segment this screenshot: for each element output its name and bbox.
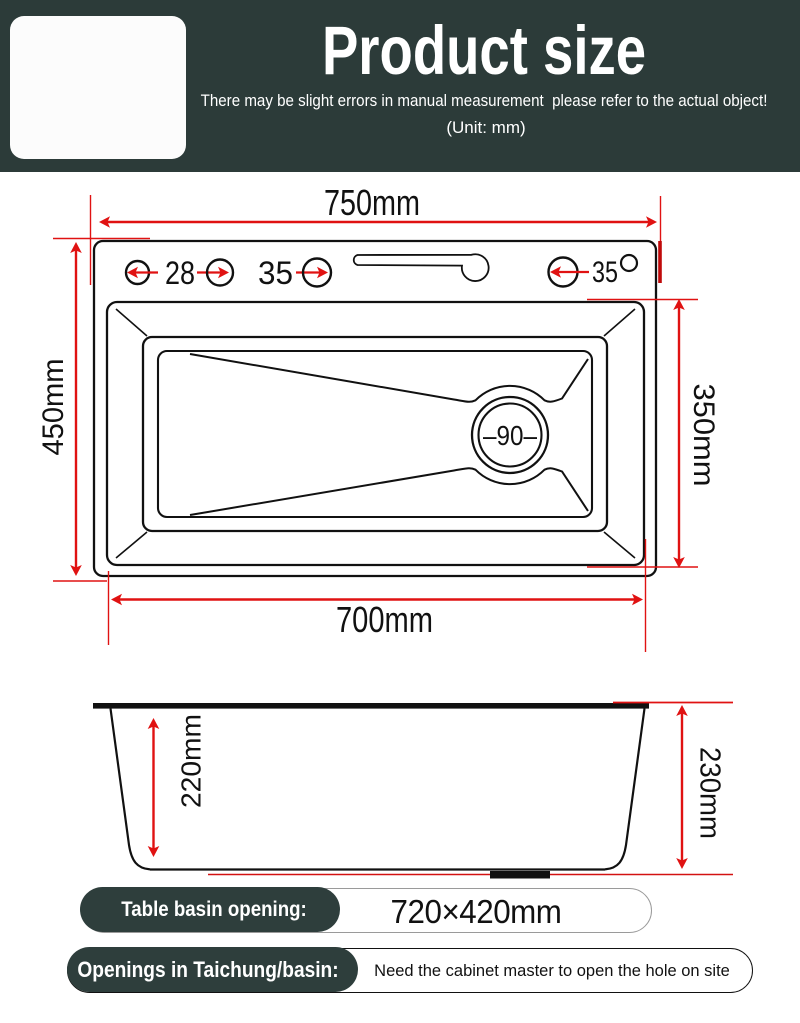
svg-text:230mm: 230mm — [693, 747, 725, 839]
svg-text:35: 35 — [592, 256, 618, 289]
svg-text:–90–: –90– — [483, 420, 537, 451]
svg-text:350mm: 350mm — [687, 384, 720, 487]
svg-text:28: 28 — [165, 255, 195, 291]
svg-text:220mm: 220mm — [175, 714, 206, 808]
svg-text:750mm: 750mm — [324, 182, 420, 223]
svg-text:700mm: 700mm — [336, 599, 433, 640]
svg-text:35: 35 — [258, 255, 293, 291]
svg-text:450mm: 450mm — [37, 359, 70, 456]
